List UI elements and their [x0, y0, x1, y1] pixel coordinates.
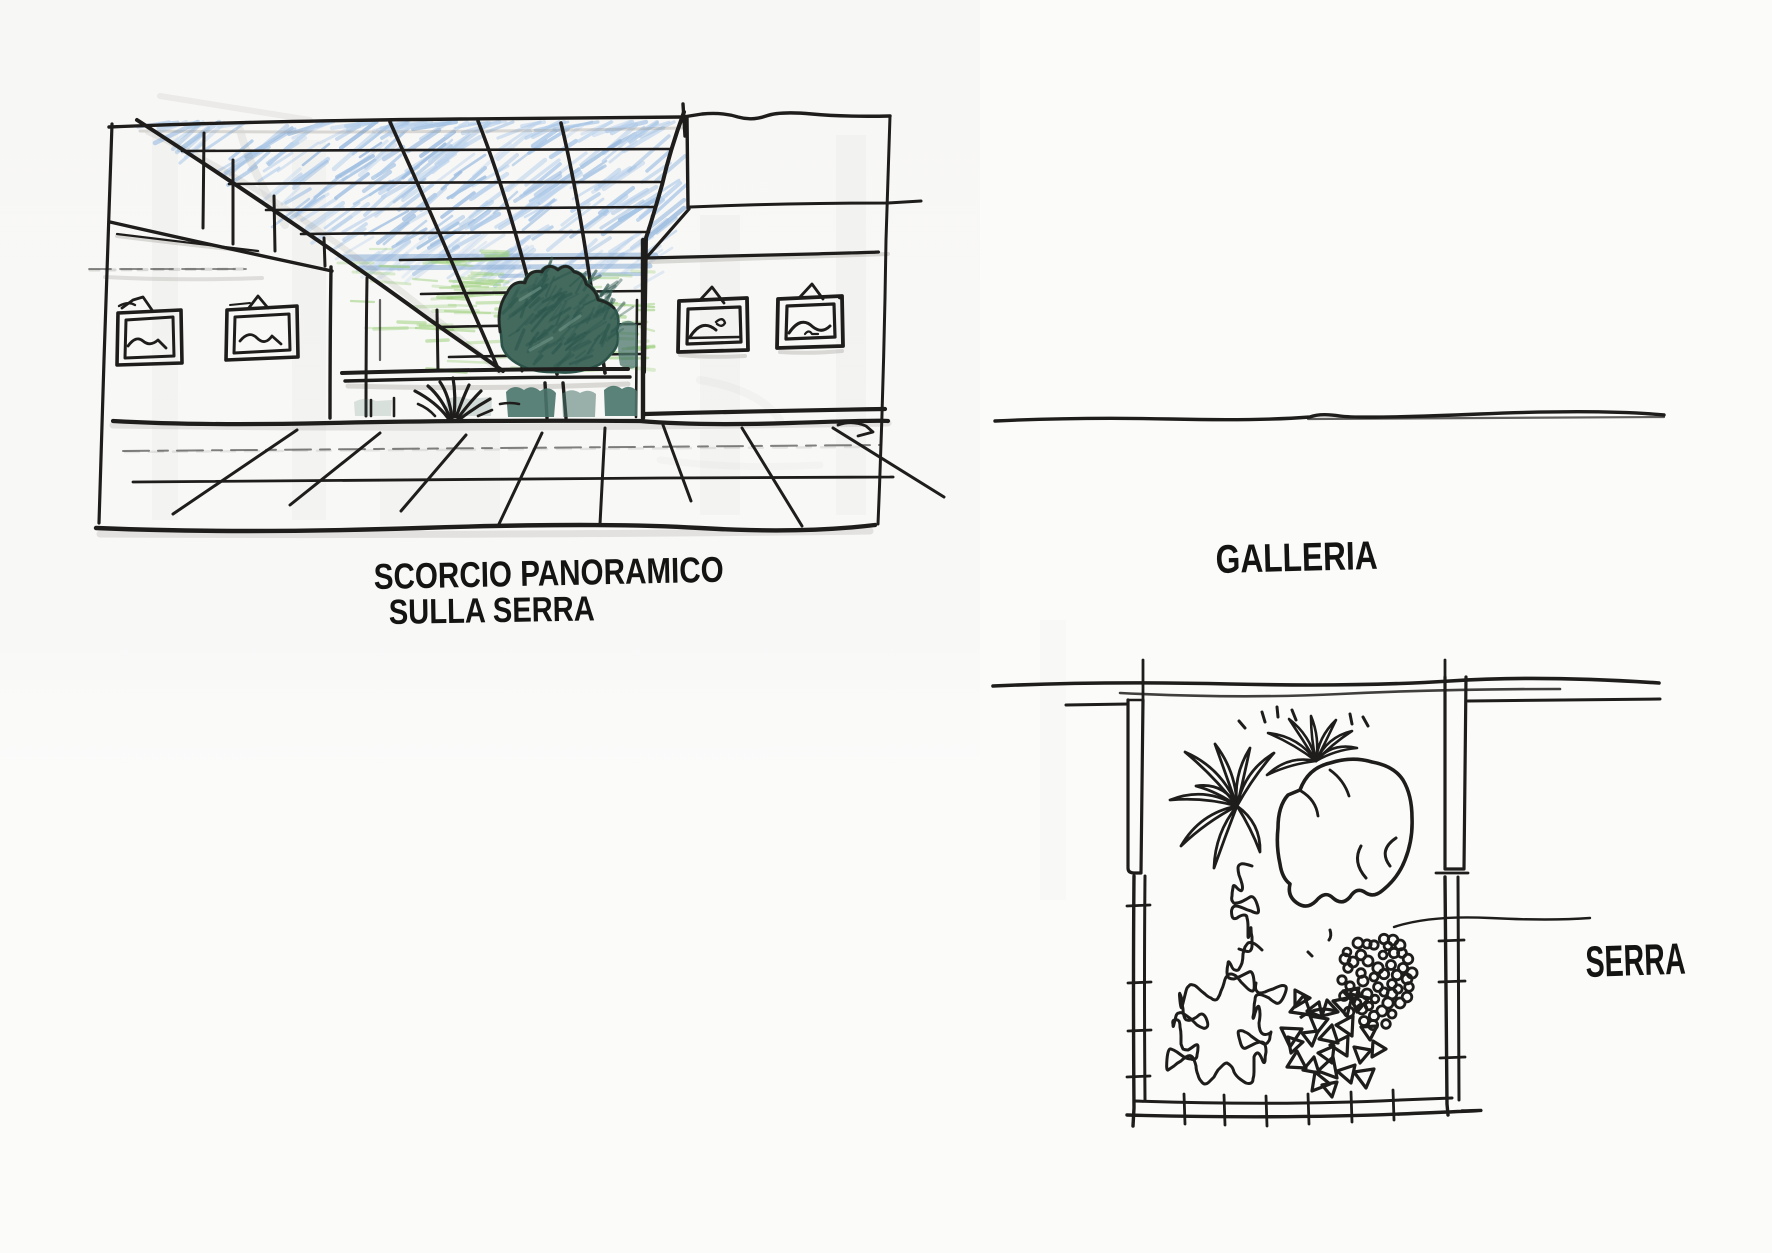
svg-text:SULLA SERRA: SULLA SERRA — [388, 589, 595, 632]
svg-text:GALLERIA: GALLERIA — [1215, 534, 1378, 582]
svg-text:SERRA: SERRA — [1585, 935, 1687, 987]
